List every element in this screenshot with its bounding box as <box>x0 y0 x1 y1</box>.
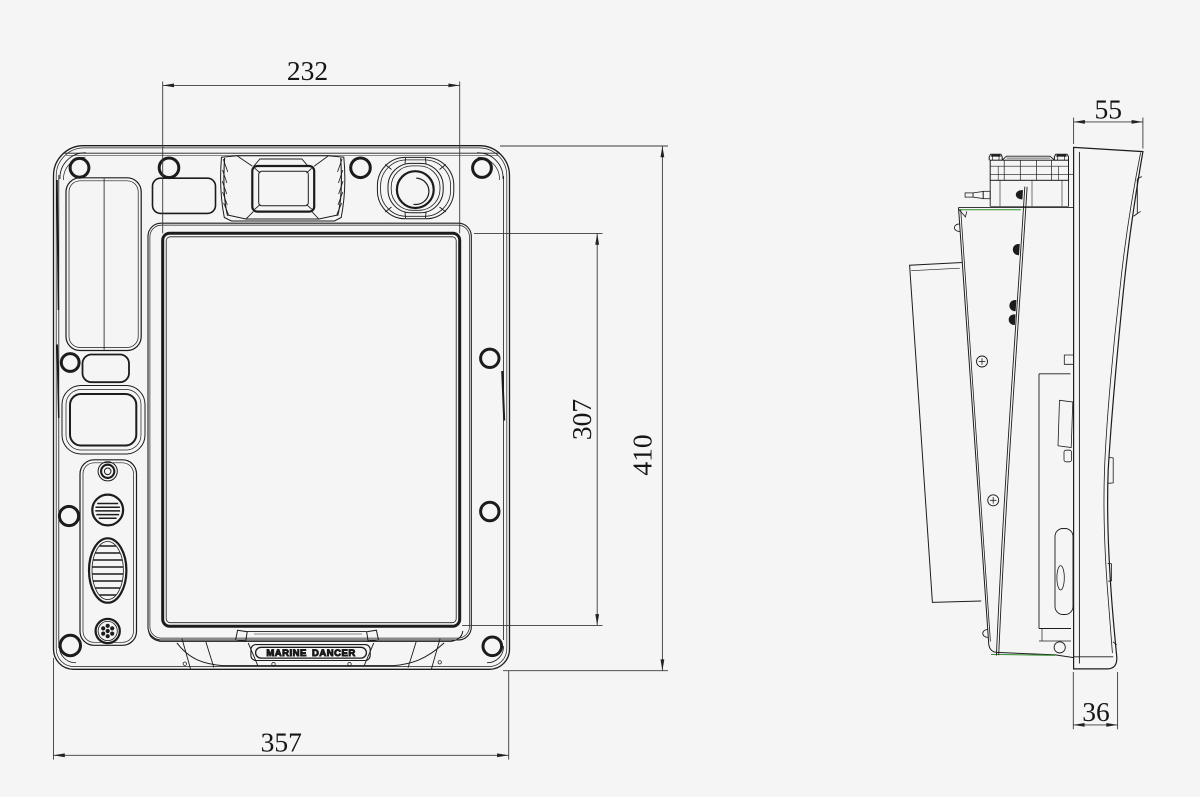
svg-text:36: 36 <box>1082 696 1110 727</box>
svg-text:410: 410 <box>627 434 658 475</box>
svg-text:357: 357 <box>261 727 302 758</box>
svg-text:232: 232 <box>287 55 328 86</box>
svg-text:307: 307 <box>566 399 597 440</box>
svg-text:MARINE DANCER: MARINE DANCER <box>266 648 355 659</box>
svg-text:55: 55 <box>1095 93 1123 124</box>
